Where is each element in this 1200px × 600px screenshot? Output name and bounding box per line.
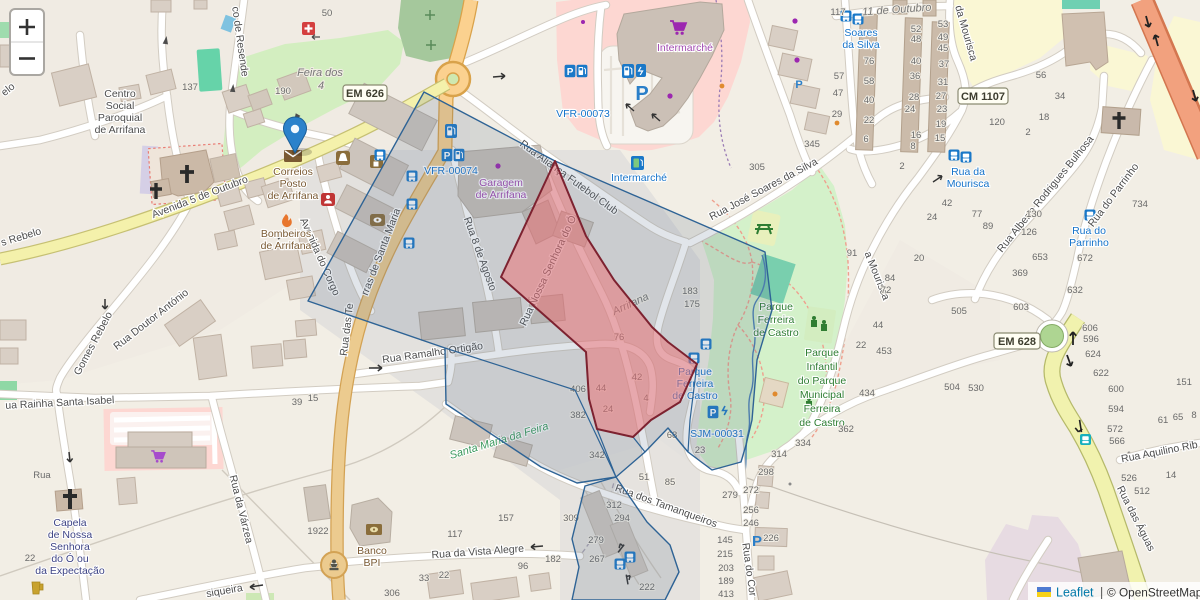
svg-text:36: 36	[910, 71, 921, 82]
svg-text:de Arrifana: de Arrifana	[95, 124, 146, 136]
svg-text:305: 305	[749, 162, 765, 173]
svg-text:34: 34	[1055, 91, 1066, 102]
svg-text:Posto: Posto	[280, 178, 307, 190]
svg-text:44: 44	[873, 320, 884, 331]
svg-text:Parque: Parque	[805, 347, 839, 359]
svg-text:85: 85	[665, 477, 676, 488]
svg-text:453: 453	[876, 346, 892, 357]
svg-text:4: 4	[318, 80, 324, 92]
svg-text:48: 48	[911, 34, 922, 45]
svg-text:226: 226	[763, 533, 779, 544]
svg-text:672: 672	[1077, 253, 1093, 264]
svg-text:76: 76	[864, 56, 875, 67]
svg-text:Intermarché: Intermarché	[657, 42, 713, 54]
svg-text:de Arrifana: de Arrifana	[261, 240, 312, 252]
svg-text:2: 2	[1025, 127, 1030, 138]
svg-text:512: 512	[1134, 486, 1150, 497]
svg-text:Senhora: Senhora	[50, 541, 90, 553]
svg-text:77: 77	[972, 209, 983, 220]
svg-text:Municipal: Municipal	[800, 389, 844, 401]
svg-text:89: 89	[983, 221, 994, 232]
svg-text:8: 8	[1191, 410, 1196, 421]
svg-text:P: P	[752, 533, 762, 550]
svg-text:31: 31	[938, 77, 949, 88]
svg-text:50: 50	[322, 8, 333, 19]
svg-text:182: 182	[545, 554, 561, 565]
svg-text:272: 272	[743, 485, 759, 496]
svg-text:53: 53	[938, 19, 949, 30]
svg-text:345: 345	[804, 139, 820, 150]
svg-text:1922: 1922	[307, 526, 328, 537]
svg-text:72: 72	[881, 285, 892, 296]
svg-text:145: 145	[717, 535, 733, 546]
svg-text:334: 334	[795, 438, 811, 449]
svg-text:45: 45	[938, 43, 949, 54]
svg-text:246: 246	[743, 518, 759, 529]
svg-text:da Expectação: da Expectação	[35, 565, 105, 577]
svg-text:6: 6	[863, 134, 868, 145]
svg-text:215: 215	[717, 549, 733, 560]
svg-text:Centro: Centro	[104, 88, 136, 100]
svg-text:15: 15	[935, 133, 946, 144]
svg-text:Intermarché: Intermarché	[611, 172, 667, 184]
svg-text:84: 84	[885, 273, 896, 284]
svg-text:do Ó ou: do Ó ou	[51, 552, 89, 565]
svg-text:|: |	[1100, 586, 1103, 600]
svg-text:EM 626: EM 626	[346, 88, 384, 100]
svg-text:18: 18	[1039, 112, 1050, 123]
svg-text:28: 28	[909, 92, 920, 103]
svg-text:24: 24	[905, 104, 916, 115]
svg-text:594: 594	[1108, 404, 1124, 415]
svg-text:632: 632	[1067, 285, 1083, 296]
svg-text:137: 137	[182, 82, 198, 93]
svg-text:19: 19	[936, 119, 947, 130]
svg-text:40: 40	[864, 95, 875, 106]
svg-text:96: 96	[518, 561, 529, 572]
svg-text:22: 22	[856, 340, 867, 351]
svg-text:203: 203	[718, 563, 734, 574]
svg-text:530: 530	[968, 383, 984, 394]
svg-text:653: 653	[1032, 252, 1048, 263]
svg-text:306: 306	[384, 588, 400, 599]
svg-text:20: 20	[914, 253, 925, 264]
svg-text:CM 1107: CM 1107	[961, 91, 1005, 103]
svg-text:314: 314	[771, 449, 787, 460]
svg-text:91: 91	[847, 248, 858, 259]
svg-text:56: 56	[1036, 70, 1047, 81]
svg-text:Social: Social	[106, 100, 135, 112]
svg-text:65: 65	[1173, 412, 1184, 423]
svg-text:369: 369	[1012, 268, 1028, 279]
svg-text:190: 190	[275, 86, 291, 97]
svg-text:16: 16	[911, 130, 922, 141]
svg-text:572: 572	[1107, 424, 1123, 435]
svg-text:39: 39	[292, 397, 303, 408]
svg-text:566: 566	[1109, 436, 1125, 447]
svg-text:256: 256	[743, 505, 759, 516]
svg-text:505: 505	[951, 306, 967, 317]
svg-text:24: 24	[927, 212, 938, 223]
svg-text:22: 22	[439, 570, 450, 581]
svg-text:23: 23	[937, 104, 948, 115]
svg-text:189: 189	[718, 576, 734, 587]
svg-text:526: 526	[1121, 473, 1137, 484]
svg-text:Infantil: Infantil	[807, 361, 838, 373]
svg-text:151: 151	[1176, 377, 1192, 388]
svg-text:Correios: Correios	[273, 166, 313, 178]
svg-text:120: 120	[989, 117, 1005, 128]
svg-text:Paroquial: Paroquial	[98, 112, 142, 124]
svg-text:279: 279	[722, 490, 738, 501]
svg-text:do Parque: do Parque	[798, 375, 847, 387]
svg-text:117: 117	[830, 7, 845, 18]
svg-text:P: P	[635, 83, 648, 105]
svg-text:603: 603	[1013, 302, 1029, 313]
svg-text:VFR-00073: VFR-00073	[556, 108, 610, 120]
svg-text:Rua do: Rua do	[1072, 225, 1106, 237]
svg-text:58: 58	[864, 76, 875, 87]
svg-text:© OpenStreetMap: © OpenStreetMap	[1107, 586, 1200, 600]
svg-text:42: 42	[942, 198, 953, 209]
svg-text:Soares: Soares	[844, 27, 877, 39]
svg-text:600: 600	[1108, 384, 1124, 395]
svg-text:Leaflet: Leaflet	[1056, 586, 1094, 600]
svg-text:61: 61	[1158, 415, 1169, 426]
svg-text:Rua: Rua	[33, 470, 51, 481]
svg-text:14: 14	[1166, 470, 1177, 481]
svg-text:126: 126	[1021, 227, 1037, 238]
svg-text:413: 413	[718, 589, 734, 600]
svg-text:596: 596	[1083, 334, 1099, 345]
svg-text:Banco: Banco	[357, 545, 387, 557]
svg-text:Parrinho: Parrinho	[1069, 237, 1109, 249]
svg-text:622: 622	[1093, 368, 1109, 379]
svg-text:27: 27	[936, 91, 947, 102]
svg-text:47: 47	[833, 88, 844, 99]
svg-text:51: 51	[639, 472, 650, 483]
svg-text:P: P	[795, 79, 802, 91]
svg-text:734: 734	[1132, 199, 1148, 210]
svg-text:22: 22	[864, 115, 875, 126]
svg-text:624: 624	[1085, 349, 1101, 360]
svg-text:8: 8	[910, 141, 915, 152]
svg-text:de Nossa: de Nossa	[48, 529, 93, 541]
svg-text:57: 57	[834, 71, 845, 82]
svg-text:40: 40	[911, 56, 922, 67]
svg-text:Ferreira: Ferreira	[804, 403, 841, 415]
svg-text:130: 130	[1026, 209, 1042, 220]
svg-text:33: 33	[419, 573, 430, 584]
svg-text:Capela: Capela	[53, 517, 86, 529]
svg-text:de Arrifana: de Arrifana	[268, 190, 319, 202]
svg-text:Feira dos: Feira dos	[297, 67, 343, 79]
svg-text:157: 157	[498, 513, 514, 524]
svg-text:606: 606	[1082, 323, 1098, 334]
svg-text:Bombeiros: Bombeiros	[261, 228, 311, 240]
svg-text:BPI: BPI	[364, 557, 381, 569]
svg-text:298: 298	[758, 467, 774, 478]
svg-text:29: 29	[832, 109, 843, 120]
svg-text:434: 434	[859, 388, 875, 399]
svg-text:EM 628: EM 628	[998, 336, 1036, 348]
svg-text:15: 15	[308, 393, 319, 404]
svg-text:362: 362	[838, 424, 854, 435]
svg-text:117: 117	[447, 529, 462, 540]
svg-text:504: 504	[944, 382, 960, 393]
svg-text:49: 49	[938, 32, 949, 43]
svg-text:Mourisca: Mourisca	[947, 178, 990, 190]
svg-text:Rua da: Rua da	[951, 166, 985, 178]
svg-text:2: 2	[899, 161, 904, 172]
svg-text:37: 37	[939, 59, 950, 70]
svg-text:da Silva: da Silva	[842, 39, 880, 51]
svg-text:22: 22	[25, 553, 36, 564]
